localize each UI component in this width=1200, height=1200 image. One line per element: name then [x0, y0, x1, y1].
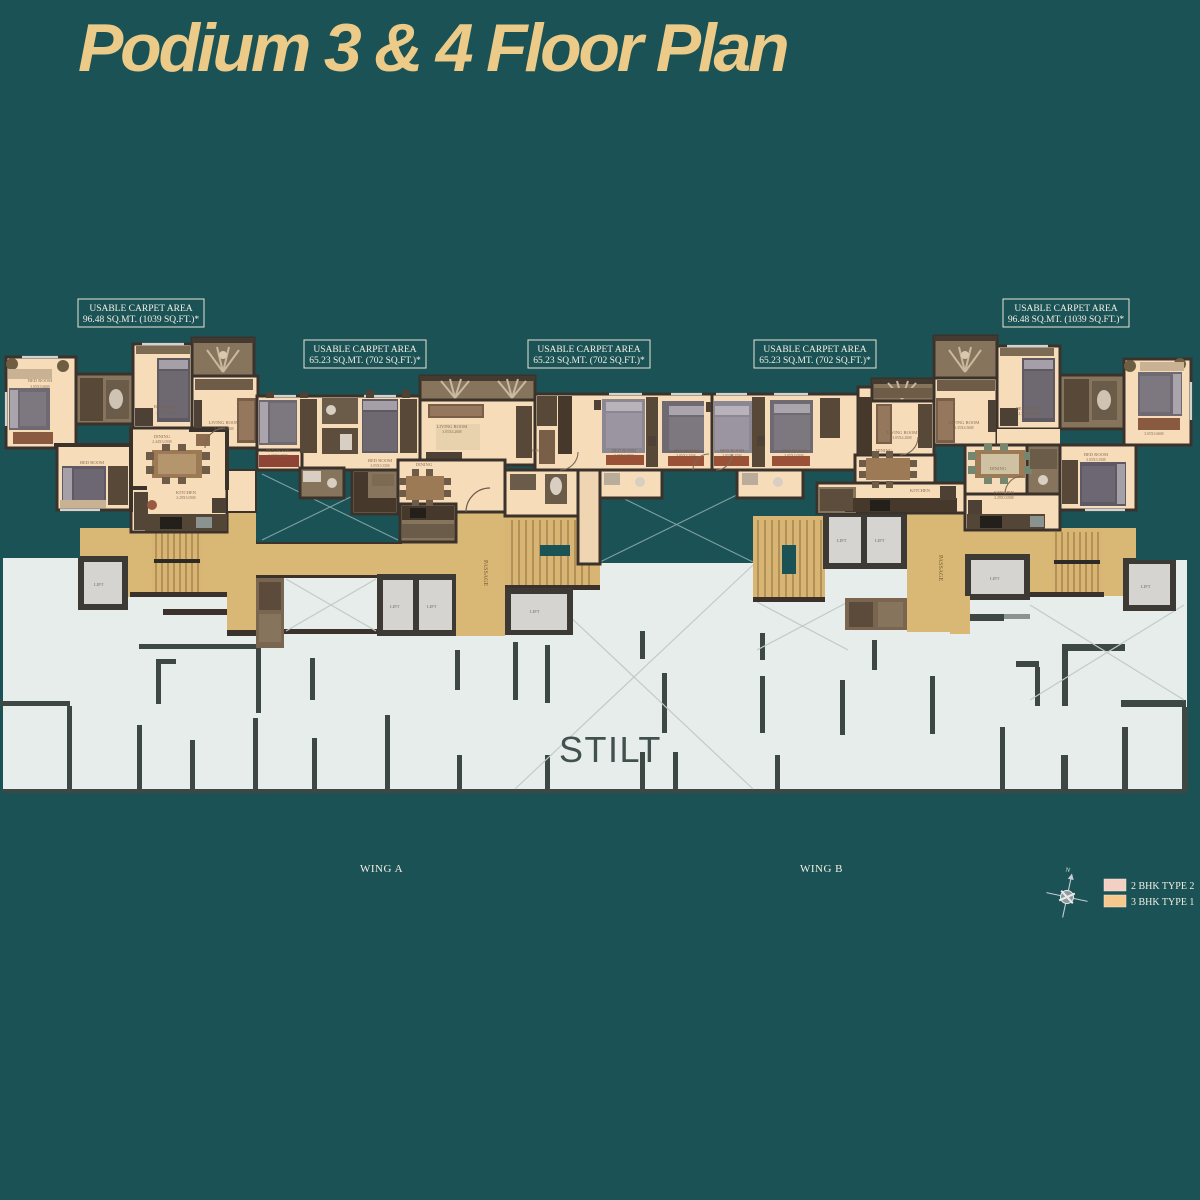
svg-text:3.05X3.35M: 3.05X3.35M	[676, 454, 696, 458]
svg-text:3.05X3.05M: 3.05X3.05M	[784, 454, 804, 458]
svg-text:BED ROOM: BED ROOM	[1016, 406, 1040, 411]
svg-text:3.05X3.35M: 3.05X3.35M	[370, 464, 390, 468]
svg-text:BED ROOM: BED ROOM	[612, 448, 636, 453]
svg-text:USABLE CARPET AREA: USABLE CARPET AREA	[89, 304, 192, 314]
svg-text:3.05X4.26M: 3.05X4.26M	[442, 430, 462, 434]
svg-text:DINING: DINING	[154, 434, 171, 439]
svg-text:BED ROOM: BED ROOM	[154, 404, 178, 409]
svg-text:LIVING ROOM: LIVING ROOM	[437, 424, 468, 429]
svg-text:3.05X3.35M: 3.05X3.35M	[82, 467, 102, 471]
svg-text:BED ROOM: BED ROOM	[28, 378, 52, 383]
svg-text:BED ROOM: BED ROOM	[1084, 452, 1108, 457]
svg-text:2 BHK TYPE 2: 2 BHK TYPE 2	[1131, 881, 1194, 892]
svg-text:3.05X3.66M: 3.05X3.66M	[1144, 432, 1164, 436]
svg-text:USABLE CARPET AREA: USABLE CARPET AREA	[537, 345, 640, 355]
svg-text:LIFT: LIFT	[1141, 584, 1151, 589]
svg-text:3 BHK TYPE 1: 3 BHK TYPE 1	[1131, 897, 1194, 908]
svg-text:BED ROOM: BED ROOM	[80, 460, 104, 465]
svg-text:BED ROOM: BED ROOM	[266, 448, 290, 453]
svg-text:BED ROOM: BED ROOM	[782, 448, 806, 453]
svg-text:65.23 SQ.MT. (702 SQ.FT.)*: 65.23 SQ.MT. (702 SQ.FT.)*	[309, 355, 421, 366]
svg-text:LIVING ROOM: LIVING ROOM	[949, 420, 980, 425]
svg-text:LIFT: LIFT	[990, 576, 1000, 581]
svg-text:USABLE CARPET AREA: USABLE CARPET AREA	[763, 345, 866, 355]
svg-text:BED ROOM: BED ROOM	[1142, 426, 1166, 431]
svg-text:PASSAGE: PASSAGE	[482, 560, 488, 586]
svg-text:65.23 SQ.MT. (702 SQ.FT.)*: 65.23 SQ.MT. (702 SQ.FT.)*	[533, 355, 645, 366]
svg-text:LIFT: LIFT	[530, 609, 540, 614]
svg-text:BED ROOM: BED ROOM	[368, 458, 392, 463]
svg-text:2.29X3.05M: 2.29X3.05M	[994, 496, 1014, 500]
svg-text:2.29X3.05M: 2.29X3.05M	[176, 496, 196, 500]
svg-text:USABLE CARPET AREA: USABLE CARPET AREA	[313, 345, 416, 355]
svg-text:96.48 SQ.MT. (1039 SQ.FT.)*: 96.48 SQ.MT. (1039 SQ.FT.)*	[83, 314, 200, 325]
svg-text:KITCHEN: KITCHEN	[176, 490, 197, 495]
svg-text:2.75X3.05M: 2.75X3.05M	[1018, 412, 1038, 416]
svg-text:LIFT: LIFT	[94, 582, 104, 587]
svg-text:USABLE CARPET AREA: USABLE CARPET AREA	[1014, 304, 1117, 314]
svg-text:LIFT: LIFT	[837, 538, 847, 543]
svg-text:96.48 SQ.MT. (1039 SQ.FT.)*: 96.48 SQ.MT. (1039 SQ.FT.)*	[1008, 314, 1125, 325]
svg-text:DINING: DINING	[416, 462, 433, 467]
svg-text:LIFT: LIFT	[427, 604, 437, 609]
svg-text:3.05X4.26M: 3.05X4.26M	[892, 436, 912, 440]
svg-text:DINING: DINING	[990, 466, 1007, 471]
svg-text:LIFT: LIFT	[390, 604, 400, 609]
svg-text:WING B: WING B	[800, 863, 843, 875]
svg-text:65.23 SQ.MT. (702 SQ.FT.)*: 65.23 SQ.MT. (702 SQ.FT.)*	[759, 355, 871, 366]
svg-text:STILT: STILT	[559, 729, 662, 770]
svg-text:KITCHEN: KITCHEN	[994, 490, 1015, 495]
svg-text:2.75X3.05M: 2.75X3.05M	[156, 411, 176, 415]
svg-text:PASSAGE: PASSAGE	[937, 555, 943, 581]
svg-text:3.05X3.05M: 3.05X3.05M	[614, 454, 634, 458]
svg-text:3.35X4.56M: 3.35X4.56M	[954, 426, 974, 430]
svg-text:3.05X3.66M: 3.05X3.66M	[30, 385, 50, 389]
svg-text:2.44X3.05M: 2.44X3.05M	[152, 440, 172, 444]
svg-text:LIVING ROOM: LIVING ROOM	[209, 420, 240, 425]
svg-text:BED ROOM: BED ROOM	[720, 448, 744, 453]
svg-text:3.05X3.35M: 3.05X3.35M	[1086, 458, 1106, 462]
svg-text:LIVING: LIVING	[532, 448, 549, 453]
svg-text:DINING: DINING	[876, 448, 893, 453]
svg-text:KITCHEN: KITCHEN	[910, 488, 931, 493]
svg-text:3.05X3.05M: 3.05X3.05M	[268, 454, 288, 458]
svg-text:Podium 3 & 4 Floor Plan: Podium 3 & 4 Floor Plan	[78, 10, 787, 86]
svg-text:BED ROOM: BED ROOM	[674, 448, 698, 453]
svg-text:WING A: WING A	[360, 863, 403, 875]
svg-text:LIVING ROOM: LIVING ROOM	[887, 430, 918, 435]
svg-text:LIFT: LIFT	[875, 538, 885, 543]
